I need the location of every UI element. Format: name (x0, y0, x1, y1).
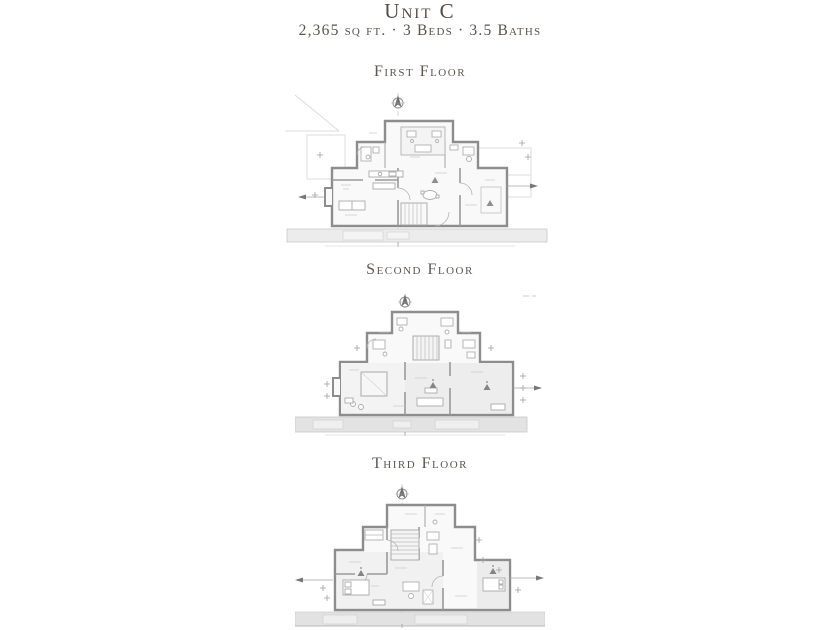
second-floor-plan (295, 288, 545, 438)
unit-specs: 2,365 sq ft. · 3 Beds · 3.5 Baths (0, 22, 840, 40)
third-floor-plan (295, 478, 545, 630)
terrace-strip (295, 417, 527, 436)
first-floor-plan-drawing (285, 85, 555, 250)
north-arrow-icon (395, 486, 409, 499)
north-arrow-icon (391, 95, 405, 108)
side-bay (333, 378, 340, 396)
third-floor-plan-drawing (295, 478, 545, 630)
courtyard-room (401, 127, 445, 155)
stairs (391, 530, 419, 560)
floor-title-second: Second Floor (0, 261, 840, 278)
stairs (413, 336, 439, 360)
north-arrow-icon (398, 294, 412, 307)
open-to-below (361, 372, 387, 396)
unit-title: Unit C (0, 0, 840, 22)
second-floor-plan-drawing (295, 288, 545, 438)
floor-title-third: Third Floor (0, 455, 840, 472)
entry-bay (325, 188, 332, 206)
terrace-strip (287, 229, 547, 247)
terrace-strip (295, 612, 545, 628)
floor-plan-sheet: Unit C 2,365 sq ft. · 3 Beds · 3.5 Baths… (0, 0, 840, 630)
reference-arrows (513, 386, 542, 391)
floor-title-first: First Floor (0, 63, 840, 80)
first-floor-plan (285, 85, 555, 250)
